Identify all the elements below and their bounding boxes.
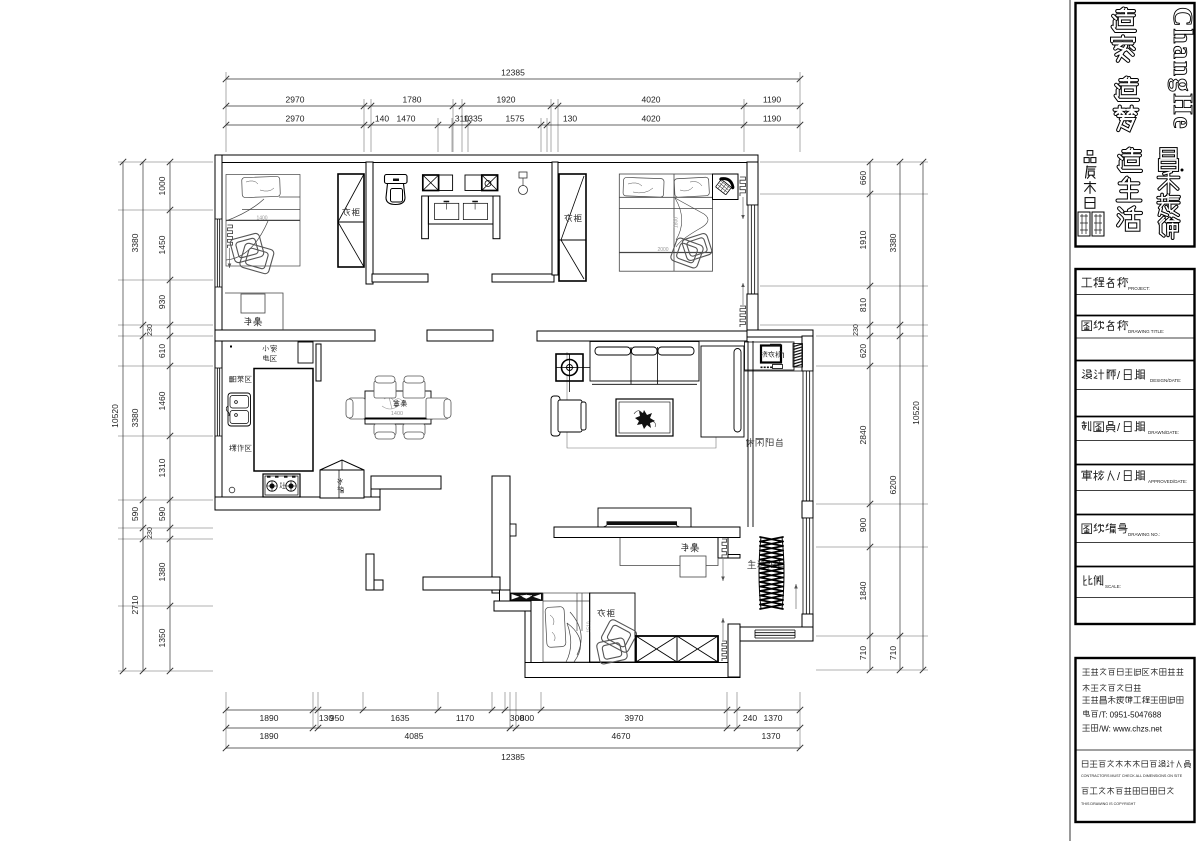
svg-text:1400: 1400	[256, 216, 267, 222]
svg-text:930: 930	[157, 295, 167, 309]
svg-text:1780: 1780	[403, 95, 422, 105]
svg-text:4085: 4085	[405, 731, 424, 741]
svg-text:1890: 1890	[260, 713, 279, 723]
svg-text:230: 230	[147, 527, 154, 539]
svg-text:710: 710	[858, 646, 868, 660]
svg-text:800: 800	[520, 713, 534, 723]
svg-text:DRAWN/DATE:: DRAWN/DATE:	[1148, 430, 1179, 435]
svg-text:1470: 1470	[397, 114, 416, 124]
svg-text:DRAWING NO.:: DRAWING NO.:	[1128, 532, 1160, 537]
svg-text:240: 240	[743, 713, 757, 723]
svg-text:THIS DRAWING IS COPYRIGHT: THIS DRAWING IS COPYRIGHT	[1081, 802, 1136, 806]
svg-text:12385: 12385	[501, 68, 525, 78]
svg-text:PROJECT:: PROJECT:	[1128, 286, 1150, 291]
svg-text:660: 660	[858, 171, 868, 185]
svg-text:810: 810	[858, 298, 868, 312]
svg-text:DESIGN/DATE:: DESIGN/DATE:	[1150, 378, 1181, 383]
svg-text:230: 230	[853, 324, 860, 336]
svg-text:1890: 1890	[260, 731, 279, 741]
svg-text:1335: 1335	[464, 114, 483, 124]
svg-text:3380: 3380	[130, 233, 140, 252]
svg-text:1380: 1380	[157, 562, 167, 581]
svg-text:10520: 10520	[911, 401, 921, 425]
svg-text:1370: 1370	[764, 713, 783, 723]
svg-text:140: 140	[375, 114, 389, 124]
svg-text:10520: 10520	[110, 404, 120, 428]
svg-text:/T: 0951-5047688: /T: 0951-5047688	[1099, 711, 1162, 720]
svg-text:1170: 1170	[456, 713, 475, 723]
svg-text:2840: 2840	[858, 425, 868, 444]
svg-text:590: 590	[157, 507, 167, 521]
svg-text:4670: 4670	[612, 731, 631, 741]
svg-text:2970: 2970	[286, 114, 305, 124]
svg-text:590: 590	[130, 507, 140, 521]
svg-text:DRAWING TITLE:: DRAWING TITLE:	[1128, 329, 1164, 334]
svg-text:620: 620	[858, 344, 868, 358]
svg-text:900: 900	[858, 518, 868, 532]
svg-text:2710: 2710	[130, 595, 140, 614]
svg-text:230: 230	[147, 324, 154, 336]
svg-text:1635: 1635	[391, 713, 410, 723]
svg-text:610: 610	[157, 344, 167, 358]
svg-text:1000: 1000	[157, 176, 167, 195]
svg-text:1400: 1400	[391, 411, 403, 417]
svg-text:1460: 1460	[157, 391, 167, 410]
svg-text:1840: 1840	[858, 581, 868, 600]
svg-text:CONTRACTORS MUST CHECK ALL DIM: CONTRACTORS MUST CHECK ALL DIMENSIONS ON…	[1081, 774, 1183, 778]
svg-text:APPROVED/DATE:: APPROVED/DATE:	[1148, 479, 1187, 484]
svg-text:130: 130	[563, 114, 577, 124]
svg-text:2000: 2000	[657, 247, 668, 253]
svg-text:3380: 3380	[130, 408, 140, 427]
svg-text:2970: 2970	[286, 95, 305, 105]
svg-text:1370: 1370	[762, 731, 781, 741]
svg-text:1310: 1310	[157, 458, 167, 477]
svg-text:710: 710	[888, 646, 898, 660]
svg-text:12385: 12385	[501, 752, 525, 762]
svg-text:/W: www.chzs.net: /W: www.chzs.net	[1099, 725, 1163, 734]
svg-text:1575: 1575	[506, 114, 525, 124]
svg-text:1450: 1450	[157, 235, 167, 254]
svg-text:4020: 4020	[642, 95, 661, 105]
svg-text:1190: 1190	[763, 95, 782, 105]
svg-text:4020: 4020	[642, 114, 661, 124]
svg-text:950: 950	[330, 713, 344, 723]
svg-text:3380: 3380	[888, 233, 898, 252]
svg-text:1190: 1190	[763, 114, 782, 124]
svg-text:1910: 1910	[858, 230, 868, 249]
svg-text:1350: 1350	[157, 628, 167, 647]
svg-text:3970: 3970	[625, 713, 644, 723]
svg-text:ChangHe: ChangHe	[1168, 7, 1198, 131]
svg-text:SCALE:: SCALE:	[1105, 584, 1121, 589]
svg-text:1800: 1800	[674, 217, 680, 228]
svg-text:6200: 6200	[888, 475, 898, 494]
svg-text:1920: 1920	[497, 95, 516, 105]
